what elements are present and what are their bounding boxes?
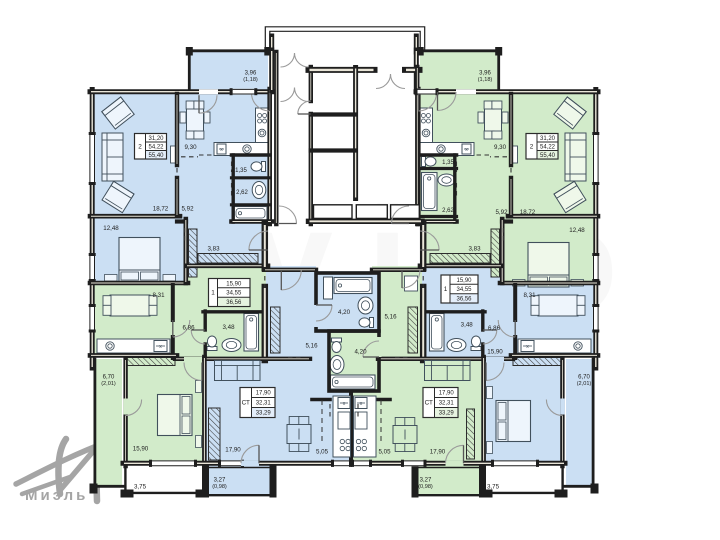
svg-text:1: 1 (444, 286, 448, 293)
svg-text:32,31: 32,31 (439, 401, 455, 407)
svg-text:(2,01): (2,01) (101, 381, 116, 387)
svg-text:36,56: 36,56 (226, 300, 242, 306)
svg-text:17,90: 17,90 (439, 391, 455, 397)
svg-text:5,05: 5,05 (316, 448, 329, 455)
svg-text:5,05: 5,05 (378, 448, 391, 455)
svg-text:54,22: 54,22 (148, 144, 164, 150)
svg-text:1: 1 (211, 290, 215, 297)
svg-text:6,86: 6,86 (182, 324, 195, 331)
svg-text:18,72: 18,72 (520, 209, 536, 216)
svg-text:31,20: 31,20 (148, 136, 164, 142)
svg-text:8,31: 8,31 (523, 292, 536, 299)
svg-text:15,90: 15,90 (133, 446, 149, 453)
svg-text:6,70: 6,70 (578, 374, 590, 380)
svg-text:31,20: 31,20 (540, 136, 556, 142)
svg-text:5,92: 5,92 (495, 209, 508, 216)
svg-text:33,29: 33,29 (256, 411, 272, 417)
svg-text:55,40: 55,40 (540, 153, 556, 159)
svg-text:5,16: 5,16 (384, 313, 397, 320)
svg-text:Миэль: Миэль (25, 487, 88, 504)
svg-text:18,72: 18,72 (153, 205, 169, 212)
svg-text:12,48: 12,48 (103, 225, 119, 232)
svg-text:1,35: 1,35 (235, 168, 247, 174)
svg-text:3,96: 3,96 (245, 70, 257, 76)
svg-text:9,30: 9,30 (494, 144, 507, 151)
svg-text:2: 2 (138, 143, 142, 150)
svg-text:2: 2 (530, 143, 534, 150)
svg-text:55,40: 55,40 (148, 153, 164, 159)
svg-text:6,70: 6,70 (103, 374, 115, 380)
svg-text:5,92: 5,92 (181, 205, 194, 212)
svg-text:СТ: СТ (425, 400, 433, 407)
svg-text:3,48: 3,48 (222, 324, 235, 331)
svg-text:17,90: 17,90 (256, 391, 272, 397)
svg-text:3,48: 3,48 (461, 322, 474, 329)
svg-text:(2,01): (2,01) (577, 381, 592, 387)
svg-text:4,20: 4,20 (354, 348, 367, 355)
svg-text:3,75: 3,75 (134, 483, 147, 490)
svg-text:2,62: 2,62 (442, 208, 454, 214)
svg-text:5,16: 5,16 (305, 342, 318, 349)
svg-text:9,30: 9,30 (184, 144, 197, 151)
svg-text:СТ: СТ (242, 400, 250, 407)
svg-text:3,83: 3,83 (468, 245, 481, 252)
svg-text:2,62: 2,62 (236, 190, 248, 196)
svg-text:(0,98): (0,98) (418, 484, 433, 490)
svg-text:54,22: 54,22 (540, 144, 556, 150)
svg-text:34,55: 34,55 (226, 291, 242, 297)
svg-text:15,90: 15,90 (456, 278, 472, 284)
svg-text:3,96: 3,96 (479, 70, 491, 76)
svg-text:15,90: 15,90 (487, 349, 503, 356)
svg-text:6,86: 6,86 (488, 325, 501, 332)
svg-text:(1,18): (1,18) (243, 77, 258, 83)
svg-text:4,20: 4,20 (338, 309, 351, 316)
svg-text:32,31: 32,31 (256, 401, 272, 407)
svg-text:17,90: 17,90 (225, 446, 241, 453)
svg-text:1,35: 1,35 (442, 160, 454, 166)
svg-text:15,90: 15,90 (226, 281, 242, 287)
svg-text:(1,18): (1,18) (478, 77, 493, 83)
svg-text:3,75: 3,75 (487, 483, 500, 490)
svg-text:12,48: 12,48 (569, 227, 585, 234)
svg-text:3,83: 3,83 (207, 245, 220, 252)
svg-text:8,31: 8,31 (152, 292, 165, 299)
svg-text:36,56: 36,56 (456, 296, 472, 302)
svg-text:3,27: 3,27 (420, 477, 432, 483)
svg-text:34,55: 34,55 (456, 287, 472, 293)
svg-text:17,90: 17,90 (430, 448, 446, 455)
svg-text:33,29: 33,29 (439, 411, 455, 417)
svg-text:(0,98): (0,98) (212, 484, 227, 490)
svg-text:3,27: 3,27 (214, 477, 226, 483)
